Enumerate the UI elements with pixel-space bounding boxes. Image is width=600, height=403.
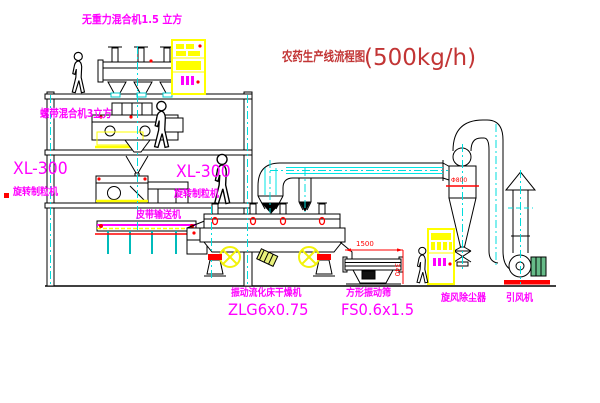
control-cabinet-right	[428, 229, 454, 284]
exhaust-duct	[258, 160, 452, 213]
fluid-bed-dryer-drawing	[200, 203, 352, 276]
dim-screen-height: 340	[393, 263, 400, 276]
label-screen-model: FS0.6x1.5	[341, 302, 414, 318]
label-fan: 引风机	[506, 294, 533, 304]
person-figure	[72, 52, 84, 92]
label-granulator-left-name: 旋转制粒机	[13, 188, 58, 198]
label-gravity-mixer: 无重力混合机1.5 立方	[82, 14, 182, 25]
diagram-title: 农药生产线流程图	[282, 51, 365, 64]
label-granulator-mid-model: XL-300	[176, 164, 231, 181]
dim-screen-length: 1500	[356, 241, 374, 248]
label-granulator-mid-name: 旋转制粒机	[174, 190, 219, 200]
flow-diagram-canvas: 农药生产线流程图 (500kg/h) 无重力混合机1.5 立方 螺带混合机3立方…	[0, 0, 600, 403]
label-ribbon-mixer: 螺带混合机3立方	[40, 108, 112, 119]
dim-cyclone-diameter: Φ800	[451, 178, 467, 184]
label-cyclone: 旋风除尘器	[441, 294, 486, 304]
label-dryer-name: 振动流化床干燥机	[231, 289, 301, 299]
label-screen-name: 方形振动筛	[346, 289, 391, 299]
person-figure	[417, 247, 428, 283]
label-dryer-model: ZLG6x0.75	[228, 302, 309, 318]
diagram-title-capacity: (500kg/h)	[364, 47, 476, 70]
label-granulator-left-model: XL-300	[13, 161, 68, 178]
induced-fan-drawing	[504, 255, 550, 285]
label-belt-conveyor: 皮带输送机	[136, 211, 181, 221]
control-cabinet-top	[172, 40, 205, 94]
belt-conveyor-drawing	[95, 221, 198, 254]
